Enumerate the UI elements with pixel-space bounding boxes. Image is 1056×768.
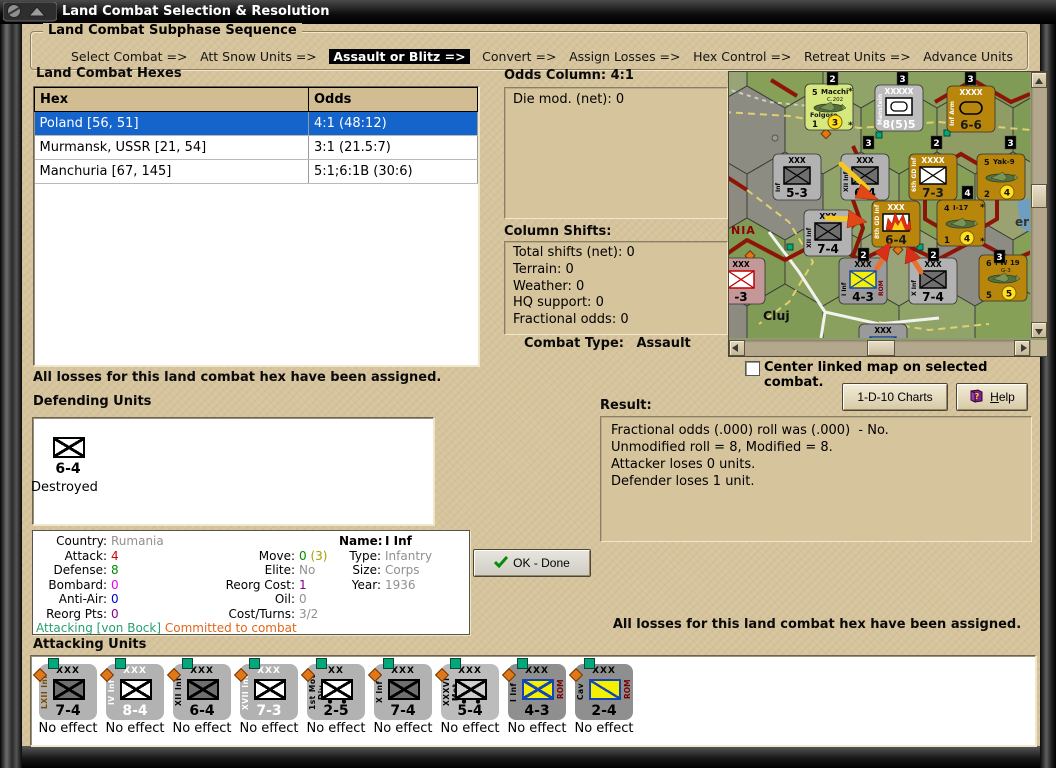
col-odds: Odds [309,88,478,112]
combat-type-label: Combat Type: [524,336,624,351]
supply-dot-icon [383,658,394,669]
unit-symbol [455,679,487,700]
svg-text:-3: -3 [734,290,747,304]
svg-text:7-4: 7-4 [817,242,839,256]
hex-stack-badge: 3 [994,250,1005,263]
dialog-content: Land Combat Subphase Sequence Select Com… [22,24,1040,746]
supply-dot-icon [450,658,461,669]
defending-unit[interactable]: XXXX 8th GD Inf 6-4 Destroyed [39,422,109,514]
subphase-step: Assault or Blitz => [329,49,469,64]
subphase-step: Att Snow Units => [200,49,317,64]
application-window: { "window": {"title": "Land Combat Selec… [0,0,1056,768]
defending-units-box: XXXX 8th GD Inf 6-4 Destroyed [32,417,434,525]
svg-text:7-4: 7-4 [922,290,944,304]
supply-dot-icon [115,658,126,669]
svg-text:XXX: XXX [854,260,872,269]
ok-button-label: OK - Done [513,556,570,570]
hex-stack-badge: 2 [827,72,838,85]
map-unit-counter[interactable]: XXXXInf Arm6-6 [947,86,995,132]
unit-status: No effect [102,721,168,736]
supply-dot-icon [584,658,595,669]
attacking-unit[interactable]: XX1st Mot Div2-5No effect [307,658,365,736]
info-row: Country:RumaniaName:I Inf [35,534,467,549]
svg-text:*: * [980,203,985,213]
die-mod-text: Die mod. (net): 0 [505,88,727,111]
column-shifts-title: Column Shifts: [504,224,611,239]
svg-text:4: 4 [1004,189,1010,199]
col-hex: Hex [35,88,309,112]
unit-symbol [321,679,353,700]
svg-text:ROM: ROM [878,280,885,296]
svg-text:5: 5 [986,291,992,301]
shift-line: Total shifts (net): 0 [513,245,719,262]
svg-text:4: 4 [964,235,970,245]
ok-done-button[interactable]: OK - Done [473,549,591,577]
subphase-step: Assign Losses => [569,49,680,64]
scroll-left-button[interactable] [729,340,745,356]
title-bar[interactable]: Land Combat Selection & Resolution [0,0,1056,25]
attacking-unit[interactable]: XXXI Inf4-3ROMNo effect [508,658,566,736]
svg-text:*: * [848,87,853,97]
hex-stack-badge: 2 [858,248,869,261]
svg-text:2: 2 [860,251,866,261]
supply-dot-icon [316,658,327,669]
svg-text:XXXX: XXXX [959,88,982,97]
svg-text:XII Inf: XII Inf [806,227,813,248]
svg-text:8th GD Inf: 8th GD Inf [874,204,881,239]
up-arrow-icon [1035,78,1043,84]
map-region-label: NIA [731,224,756,237]
svg-text:8(5)5: 8(5)5 [882,118,915,131]
unit-info-panel: Country:RumaniaName:I InfAttack:4Move:0 … [32,530,470,635]
svg-text:3: 3 [899,75,905,85]
check-icon [494,556,508,571]
svg-text:3: 3 [1007,139,1013,149]
scroll-corner [1031,340,1047,356]
vscroll-thumb[interactable] [1031,184,1047,208]
result-line: Fractional odds (.000) roll was (.000) -… [611,422,1021,439]
hex-row[interactable]: Murmansk, USSR [21, 54]3:1 (21.5:7) [35,136,478,160]
svg-text:XXX: XXX [874,326,892,335]
defending-units-title: Defending Units [33,394,151,409]
column-shifts-panel: Total shifts (net): 0Terrain: 0Weather: … [504,241,728,335]
attacking-unit[interactable]: XXXXII Inf6-4No effect [173,658,231,736]
shift-line: Weather: 0 [513,279,719,296]
svg-text:Inf Arm: Inf Arm [949,101,956,126]
unit-status: No effect [504,721,570,736]
subphase-groupbox: Land Combat Subphase Sequence Select Com… [30,31,1028,70]
unit-status: No effect [303,721,369,736]
unit-symbol [120,679,152,700]
unit-symbol [254,679,286,700]
svg-text:I-17: I-17 [953,204,968,212]
svg-text:4: 4 [944,204,950,213]
svg-text:XXXXX: XXXXX [885,87,914,96]
map-unit-counter[interactable]: 5Yak-924 [977,154,1025,200]
die-mod-panel: Die mod. (net): 0 [504,87,728,219]
hex-stack-badge: 3 [1005,136,1016,149]
svg-text:1: 1 [944,236,950,246]
hex-stack-badge: 4 [962,186,973,199]
charts-button-label: 1-D-10 Charts [857,390,932,404]
attacking-units-box: XXXLXII Inf7-4No effectXXXIV Inf8-4No ef… [30,655,1036,746]
unit-symbol [388,679,420,700]
info-row: Defense:8Elite:NoSize:Corps [35,563,467,578]
map-unit-counter[interactable]: XXXMtnROM [859,324,907,338]
unit-symbol [522,679,554,700]
map-unit-counter[interactable]: XXXXXManstein8(5)5 [875,85,923,131]
attacking-unit[interactable]: XXXLXII Inf7-4No effect [39,658,97,736]
svg-text:I Inf: I Inf [841,282,848,296]
svg-text:6-6: 6-6 [960,118,982,132]
svg-text:5: 5 [1006,290,1012,300]
svg-text:6: 6 [986,259,992,268]
unit-symbol [53,679,85,700]
svg-text:2: 2 [933,139,939,149]
attacking-unit[interactable]: XXXIV Inf8-4No effect [106,658,164,736]
subphase-step: Convert => [482,49,556,64]
unit-status: No effect [169,721,235,736]
result-line: Attacker loses 0 units. [611,456,1021,473]
left-arrow-icon [732,344,738,352]
center-map-checkbox[interactable] [745,361,760,376]
svg-text:3: 3 [996,253,1002,263]
scroll-down-button[interactable] [1031,322,1047,338]
svg-text:XXX: XXX [788,156,806,165]
svg-text:Macchi: Macchi [821,88,848,96]
unit-info-rows: Country:RumaniaName:I InfAttack:4Move:0 … [35,534,467,621]
combat-type-line: Combat Type: Assault [524,336,691,351]
subphase-step: Advance Units [923,49,1013,64]
column-shifts-lines: Total shifts (net): 0Terrain: 0Weather: … [505,242,727,332]
window-frame-bottom [22,746,1040,768]
attacking-unit[interactable]: XXXX Inf7-4No effect [374,658,432,736]
svg-text:XXXX: XXXX [921,156,944,165]
svg-text:?: ? [975,392,980,401]
map-edge-label: erm [1015,215,1030,229]
hexes-title: Land Combat Hexes [36,66,182,81]
window-frame-left [0,24,22,768]
right-arrow-icon [1021,344,1027,352]
hexes-listbox[interactable]: Hex Odds Poland [56, 51]4:1 (48:12)Murma… [33,86,479,366]
svg-text:3: 3 [865,139,871,149]
window-title: Land Combat Selection & Resolution [62,4,329,19]
svg-text:3: 3 [967,75,973,85]
svg-text:1: 1 [812,120,818,130]
subphase-step: Select Combat => [71,49,188,64]
combat-type-value: Assault [637,336,691,351]
svg-text:XXX: XXX [856,156,874,165]
shift-line: Fractional odds: 0 [513,312,719,329]
supply-dot-icon [48,658,59,669]
losses-message-left: All losses for this land combat hex have… [33,370,441,385]
help-book-icon: ? [969,389,985,406]
subphase-title: Land Combat Subphase Sequence [43,23,302,38]
unit-status: No effect [571,721,637,736]
hex-row[interactable]: Manchuria [67, 145]5:1;6:1B (30:6) [35,160,478,184]
subphase-steps: Select Combat =>Att Snow Units =>Assault… [71,49,1013,64]
hex-row[interactable]: Poland [56, 51]4:1 (48:12) [35,112,478,136]
attacking-unit[interactable]: XXXCav2-4ROMNo effect [575,658,633,736]
svg-text:5-3: 5-3 [786,186,808,200]
charts-button[interactable]: 1-D-10 Charts [842,383,948,411]
svg-text:XXX: XXX [887,203,905,212]
result-line: Defender loses 1 unit. [611,473,1021,490]
unit-status: No effect [437,721,503,736]
odds-column-title: Odds Column: 4:1 [504,68,634,83]
svg-text:2: 2 [930,251,936,261]
attacking-unit[interactable]: XXXXVII Inf7-3No effect [240,658,298,736]
unit-symbol [589,679,621,700]
hex-stack-badge: 2 [928,248,939,261]
svg-text:Inf: Inf [775,182,782,192]
svg-text:C.202: C.202 [827,97,843,103]
unit-strength-label: 6-4 [39,461,97,477]
unit-status: No effect [236,721,302,736]
supply-dot-icon [517,658,528,669]
shift-line: HQ support: 0 [513,295,719,312]
hex-table-body: Hex Odds Poland [56, 51]4:1 (48:12)Murma… [35,88,478,184]
supply-dot-icon [182,658,193,669]
map-unit-counter[interactable]: XXXInf5-3 [773,154,821,200]
svg-text:G-3: G-3 [1001,268,1011,274]
svg-text:2: 2 [984,190,990,200]
subphase-step: Hex Control => [693,49,791,64]
map-vscrollbar[interactable] [1031,72,1047,338]
svg-text:Yak-9: Yak-9 [992,158,1015,166]
map-unit-counter[interactable]: 5MacchiC.202Folgore13** [805,84,853,131]
map-hscrollbar[interactable] [729,340,1030,356]
info-row: Reorg Pts:0Cost/Turns:3/2 [35,607,467,622]
info-row: Bombard:0Reorg Cost:1Year:1936 [35,578,467,593]
info-row: Anti-Air:0Oil:0 [35,592,467,607]
svg-text:XXX: XXX [924,260,942,269]
hex-stack-badge: 3 [863,136,874,149]
svg-text:*: * [980,237,985,247]
hex-stack-badge: 3 [965,72,976,85]
svg-text:5: 5 [812,88,818,97]
svg-text:2: 2 [829,75,835,85]
hex-stack-badge: 3 [897,72,908,85]
svg-text:5: 5 [984,158,990,167]
hscroll-thumb[interactable] [867,340,895,356]
svg-text:X Inf: X Inf [911,280,918,296]
svg-text:4: 4 [964,189,970,199]
supply-dot-icon [249,658,260,669]
hexes-table: Hex Odds Poland [56, 51]4:1 (48:12)Murma… [34,87,478,184]
infantry-symbol [53,437,85,458]
attacking-units-row: XXXLXII Inf7-4No effectXXXIV Inf8-4No ef… [31,656,1035,736]
map-unit-counter[interactable]: XXXX6th GD Inf7-3 [909,154,957,200]
result-lines: Fractional odds (.000) roll was (.000) -… [601,417,1031,495]
svg-text:7-3: 7-3 [922,186,944,200]
hex-stack-badge: 2 [931,136,942,149]
map-widget: NIA Cluj erm 5MacchiC.202Folgore13**XXXX… [728,71,1048,357]
unit-symbol [187,679,219,700]
info-row: Attack:4Move:0 (3)Type:Infantry [35,549,467,564]
subphase-step: Retreat Units => [804,49,911,64]
svg-text:*: * [848,121,853,131]
attacking-units-title: Attacking Units [33,637,146,652]
down-arrow-icon [1035,329,1043,335]
svg-text:6th GD Inf: 6th GD Inf [911,157,918,192]
result-line: Unmodified roll = 8, Modified = 8. [611,439,1021,456]
unit-status: No effect [35,721,101,736]
help-button[interactable]: ? Help [956,383,1028,411]
unit-info-footer: Attacking [von Bock] Committed to combat [35,621,467,636]
losses-message-right: All losses for this land combat hex have… [582,617,1052,632]
help-button-label: Help [990,390,1015,404]
scroll-right-button[interactable] [1014,340,1030,356]
result-panel: Fractional odds (.000) roll was (.000) -… [600,416,1032,542]
shift-line: Terrain: 0 [513,262,719,279]
map-unit-counter[interactable]: 4I-1714** [937,200,985,247]
unit-status: Destroyed [31,480,97,495]
hex-table-header: Hex Odds [35,88,478,112]
unit-status: No effect [370,721,436,736]
map-city-label: Cluj [763,308,790,323]
attacking-unit[interactable]: XXXXXXVI Mot5-4No effect [441,658,499,736]
map-canvas[interactable]: NIA Cluj erm 5MacchiC.202Folgore13**XXXX… [729,72,1030,338]
defending-unit-counter: XXXX 8th GD Inf 6-4 [39,422,97,478]
svg-text:3: 3 [832,119,838,129]
scroll-up-button[interactable] [1031,72,1047,88]
svg-text:4-3: 4-3 [852,290,874,304]
result-title: Result: [600,398,652,413]
svg-text:XXX: XXX [732,260,750,269]
map-unit-counter[interactable]: XXXHUN-3 [729,258,765,304]
